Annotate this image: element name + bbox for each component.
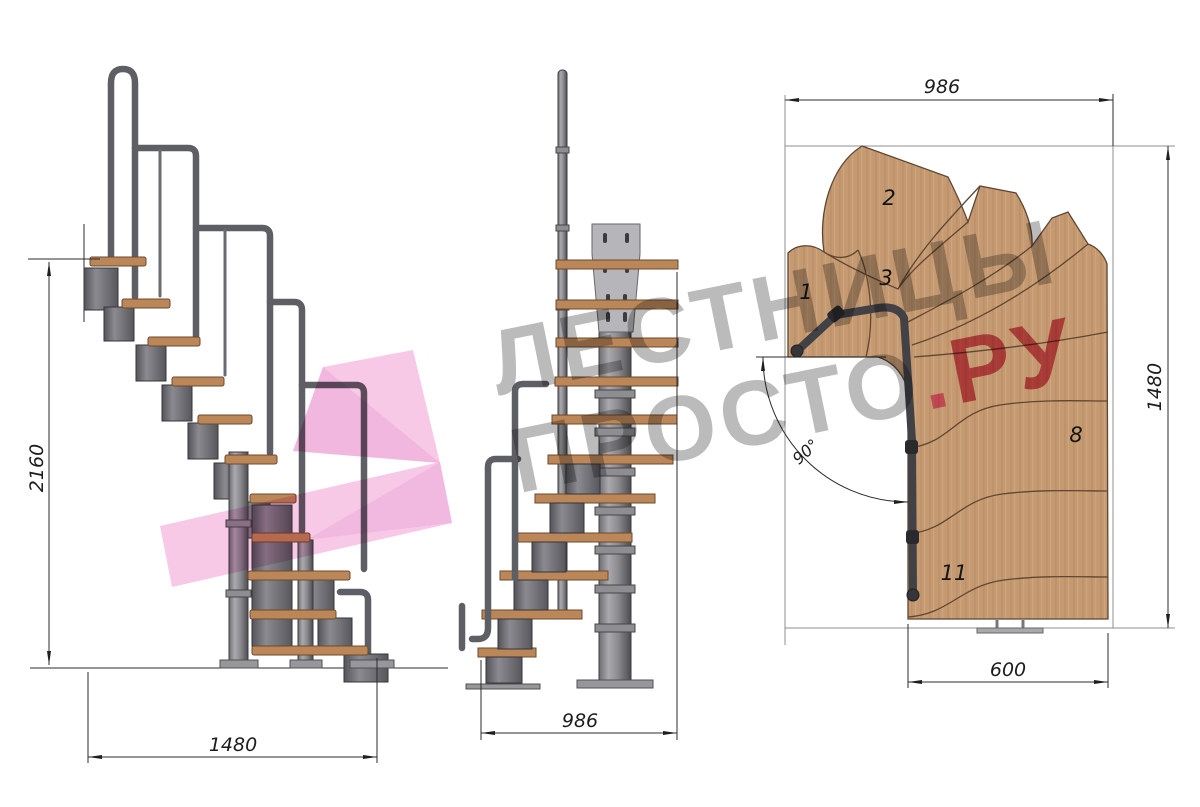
front-base-flange xyxy=(577,680,653,688)
page: { "dimensions": { "side_height": "2160",… xyxy=(0,0,1200,807)
plan-base-plate xyxy=(977,620,1043,633)
wall-bracket xyxy=(84,268,118,310)
dim-front-width: 986 xyxy=(562,710,598,732)
plan-depth-dimension: 1480 xyxy=(1144,146,1170,628)
dim-plan-depth: 1480 xyxy=(1144,363,1166,411)
step-label-2: 2 xyxy=(882,186,895,210)
dim-side-length: 1480 xyxy=(209,734,257,756)
step-label-8: 8 xyxy=(1069,423,1082,447)
plan-width-dimension: 986 xyxy=(785,76,1113,146)
step-label-11: 11 xyxy=(941,561,968,585)
dim-plan-exit-width: 600 xyxy=(990,659,1026,681)
side-length-dimension: 1480 xyxy=(88,658,377,763)
dim-plan-width: 986 xyxy=(924,76,960,98)
side-stair-modules xyxy=(84,257,394,682)
side-height-dimension: 2160 xyxy=(26,259,100,665)
plan-exit-width-dimension: 600 xyxy=(908,624,1108,688)
dim-side-height: 2160 xyxy=(26,444,48,492)
